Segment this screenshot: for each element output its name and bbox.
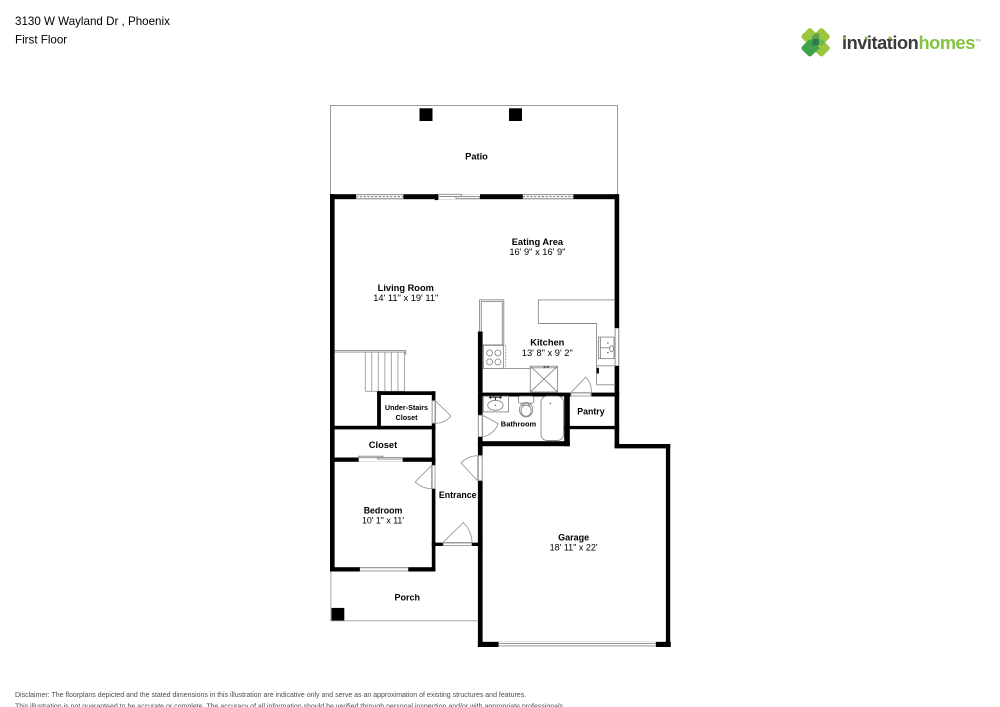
svg-text:Bedroom: Bedroom	[364, 505, 403, 515]
svg-text:Closet: Closet	[396, 413, 419, 422]
svg-text:This illustration is not guara: This illustration is not guaranteed to b…	[15, 703, 565, 707]
svg-text:Living Room: Living Room	[378, 283, 434, 293]
svg-text:Disclaimer: The floorplans dep: Disclaimer: The floorplans depicted and …	[15, 692, 526, 699]
svg-text:Closet: Closet	[369, 440, 397, 450]
svg-text:Under-Stairs: Under-Stairs	[385, 403, 428, 412]
svg-text:Bathroom: Bathroom	[501, 419, 537, 428]
svg-text:16' 9" x 16' 9": 16' 9" x 16' 9"	[509, 247, 565, 257]
svg-text:First Floor: First Floor	[15, 34, 67, 47]
svg-text:Entrance: Entrance	[439, 490, 477, 500]
svg-text:Eating Area: Eating Area	[512, 237, 564, 247]
svg-text:Porch: Porch	[394, 593, 420, 603]
svg-text:Patio: Patio	[465, 152, 488, 162]
svg-text:18' 11" x 22': 18' 11" x 22'	[550, 543, 598, 553]
svg-text:14' 11" x 19' 11": 14' 11" x 19' 11"	[373, 293, 438, 303]
svg-text:Kitchen: Kitchen	[530, 338, 564, 348]
svg-text:3130 W Wayland Dr , Phoenix: 3130 W Wayland Dr , Phoenix	[15, 15, 170, 28]
svg-text:TM: TM	[975, 37, 981, 42]
svg-text:10' 1" x 11': 10' 1" x 11'	[362, 515, 404, 525]
svg-text:homes: homes	[919, 33, 976, 53]
svg-text:Garage: Garage	[558, 533, 589, 543]
svg-text:13' 8" x 9' 2": 13' 8" x 9' 2"	[522, 348, 573, 358]
svg-text:Pantry: Pantry	[577, 407, 604, 417]
svg-text:invitation: invitation	[842, 33, 918, 53]
